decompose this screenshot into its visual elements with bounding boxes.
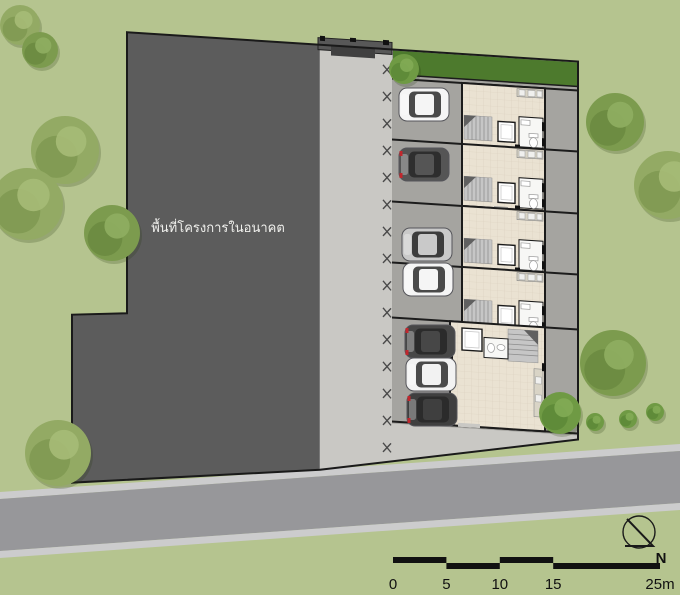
site-area xyxy=(72,20,578,516)
scale-bar-segment xyxy=(446,563,499,569)
scale-label: 10 xyxy=(491,576,508,593)
future-area-label: พื้นที่โครงการในอนาคต xyxy=(151,218,285,235)
townhouse-unit-plan xyxy=(462,144,545,212)
townhouse-unit-plan xyxy=(462,83,545,151)
scale-label: 25m xyxy=(645,576,674,593)
scale-label: 15 xyxy=(545,576,562,593)
north-label: N xyxy=(656,550,667,567)
scale-bar-segment xyxy=(553,563,660,569)
corner-unit-plan xyxy=(449,321,546,432)
site-plan-canvas: พื้นที่โครงการในอนาคต 05101525m N xyxy=(0,0,680,595)
parked-car xyxy=(399,88,449,121)
scale-label: 5 xyxy=(442,576,450,593)
parked-car xyxy=(403,263,453,296)
townhouse-unit-plan xyxy=(462,206,545,274)
scale-bar-segment xyxy=(393,557,446,563)
site-plan-page: พื้นที่โครงการในอนาคต 05101525m N xyxy=(0,0,680,595)
units-layer xyxy=(449,82,546,432)
scale-label: 0 xyxy=(389,576,397,593)
parked-car xyxy=(406,358,456,391)
parked-car xyxy=(405,325,455,358)
parked-car xyxy=(402,228,452,261)
scale-bar-segment xyxy=(500,557,553,563)
parked-car xyxy=(399,148,449,181)
parked-car xyxy=(407,393,457,426)
